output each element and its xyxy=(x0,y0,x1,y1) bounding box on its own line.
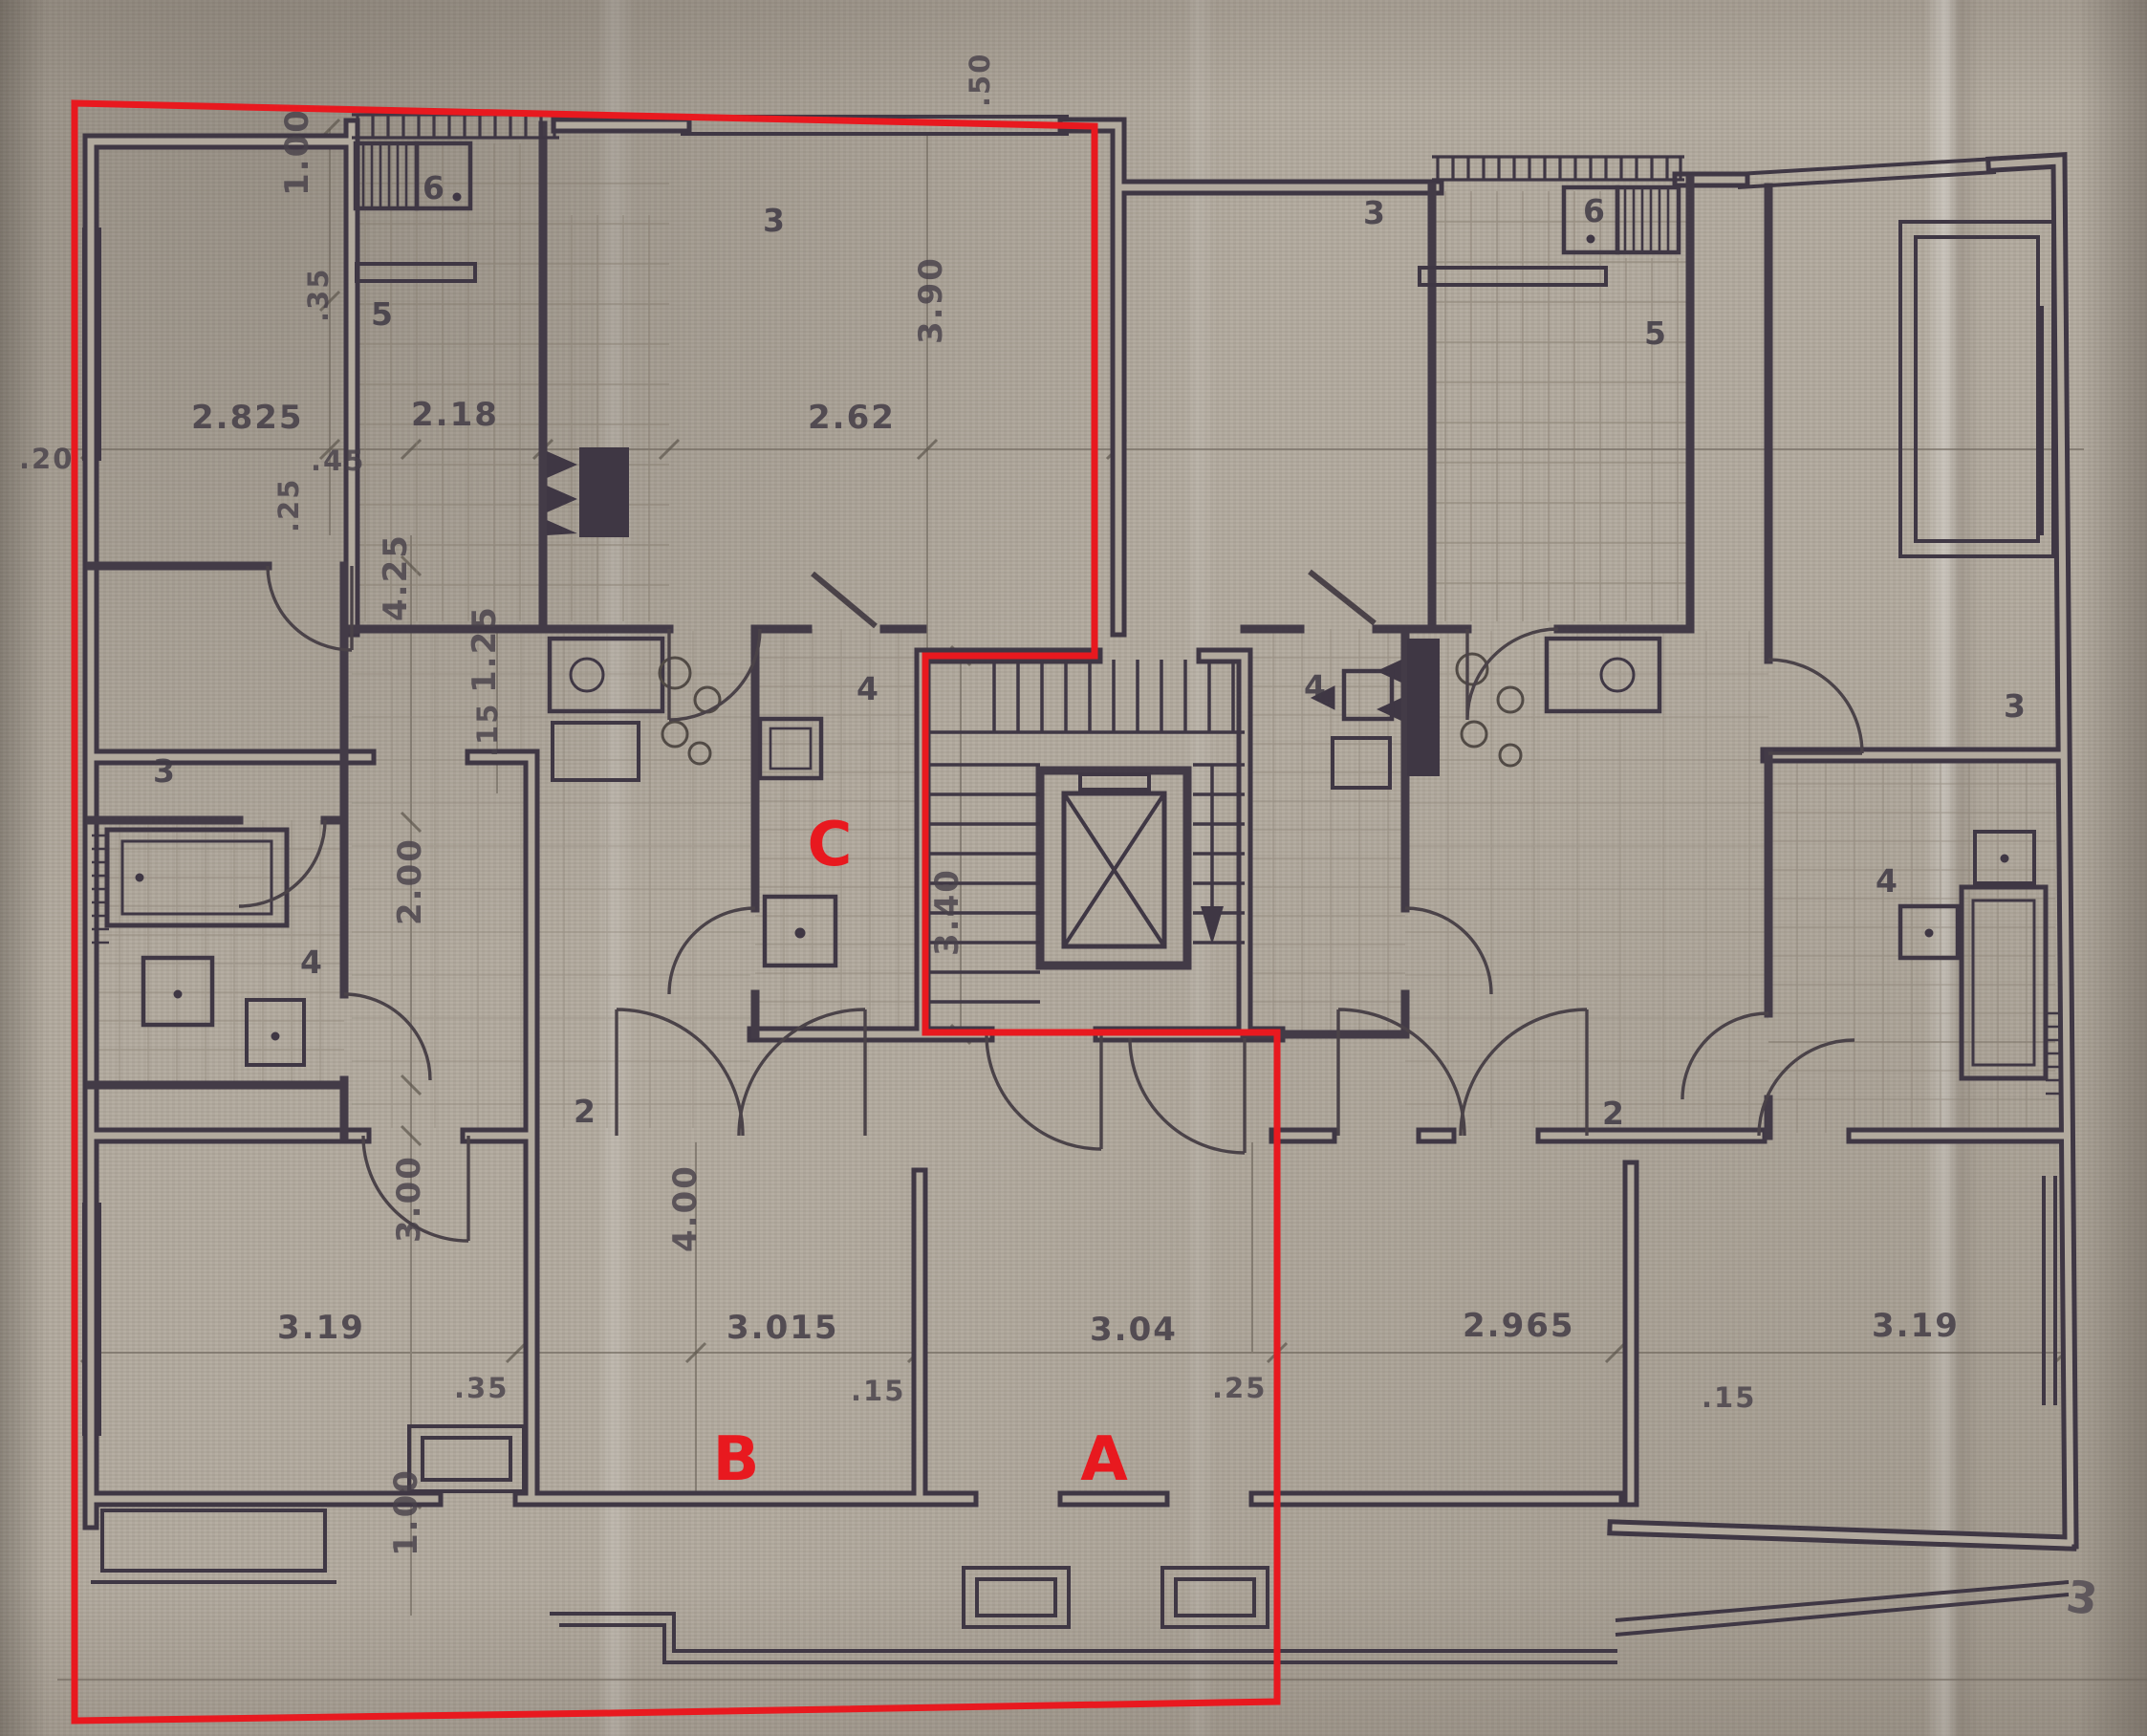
dimension-text: .25 xyxy=(272,478,305,532)
stair-direction-arrow xyxy=(1201,906,1224,944)
dimension-text: .15 xyxy=(471,703,504,757)
dimension-text: .15 xyxy=(1702,1381,1756,1414)
toilet-wc-left-icon xyxy=(765,897,835,966)
room-number: 4 xyxy=(1304,668,1326,705)
chimney-right xyxy=(1377,639,1440,776)
dimension-text: .45 xyxy=(311,445,365,477)
stove-right-icon xyxy=(1564,187,1679,252)
dimension-text: 2.825 xyxy=(191,399,304,437)
dimension-text: .15 xyxy=(851,1375,905,1407)
counter-sink-left xyxy=(550,639,662,780)
dimension-text: .20 xyxy=(19,443,74,475)
dimensions-layer: 2.825 2.18 2.62 .20 .45 .35 1.00 .25 4.2… xyxy=(19,53,1960,1556)
room-number: 5 xyxy=(1644,315,1666,352)
bathtub-right-icon xyxy=(1962,887,2046,1078)
dimension-text: 3.90 xyxy=(912,256,950,344)
toilet-right-icon xyxy=(1975,832,2034,883)
dimension-text: 2.62 xyxy=(808,399,896,437)
stairs xyxy=(925,660,1245,1002)
dimension-text: 1.00 xyxy=(278,108,316,196)
kitchen-tile-grid-right xyxy=(1434,191,1690,621)
room-number: 3 xyxy=(2004,687,2026,725)
washbasin-right-icon xyxy=(1900,906,1958,958)
dimension-text: 3.40 xyxy=(928,868,966,956)
elevator-icon xyxy=(1064,774,1164,946)
scanned-floorplan-photo: 2.825 2.18 2.62 .20 .45 .35 1.00 .25 4.2… xyxy=(0,0,2147,1736)
dimension-text: 4.25 xyxy=(377,533,415,621)
dimension-text: 4.00 xyxy=(666,1164,705,1252)
region-label-c: C xyxy=(808,810,853,880)
dimension-text: 3.00 xyxy=(390,1155,428,1243)
room-number: 2 xyxy=(574,1093,596,1130)
dimension-text: .25 xyxy=(1212,1372,1267,1404)
room-number: 3 xyxy=(1363,194,1385,231)
dimension-text: 3.19 xyxy=(1872,1307,1960,1345)
region-label-b: B xyxy=(713,1424,760,1495)
dimension-text: 2.00 xyxy=(391,837,429,925)
dimension-text: .50 xyxy=(964,53,996,107)
room-number: 4 xyxy=(300,944,322,981)
dimension-text: 1.00 xyxy=(387,1468,425,1556)
room-number: 6 xyxy=(1583,192,1605,229)
dimension-text: 2.965 xyxy=(1463,1307,1575,1345)
stove-left-icon xyxy=(356,143,470,208)
railing-hatch-right xyxy=(1432,157,1684,180)
dimension-text: 1.25 xyxy=(466,605,504,693)
dimension-text: 2.18 xyxy=(411,396,499,434)
toilet-wc-right-icon xyxy=(1333,738,1390,788)
walls-outer-core xyxy=(91,125,2071,1543)
floor-plan-svg: 2.825 2.18 2.62 .20 .45 .35 1.00 .25 4.2… xyxy=(0,0,2147,1736)
room-number: 3 xyxy=(153,752,175,790)
room-number: 5 xyxy=(371,295,393,333)
room-number: 3 xyxy=(763,202,785,239)
hall-floor-grid xyxy=(352,631,1768,1128)
dimension-text: .35 xyxy=(454,1372,509,1404)
railing-hatch-left xyxy=(352,115,559,138)
counter-sink-right xyxy=(1547,639,1659,711)
dimension-text: 3.19 xyxy=(277,1309,365,1347)
room-number: 4 xyxy=(1876,862,1898,900)
region-label-a: A xyxy=(1080,1424,1128,1495)
toilet-left-icon xyxy=(247,1000,304,1065)
bathroom-tile-grids xyxy=(91,629,2055,1133)
room-number: 6 xyxy=(423,169,445,206)
dimension-text: .35 xyxy=(302,268,335,322)
room-number: 4 xyxy=(857,670,878,707)
red-annotation-overlay: A B C xyxy=(75,103,1277,1721)
dimension-text: 3.04 xyxy=(1090,1311,1178,1349)
walls-outer xyxy=(91,125,2071,1543)
chimney-left xyxy=(547,447,629,537)
room-numbers-layer: 6 5 3 4 4 3 2 3 6 5 4 2 3 4 3 xyxy=(153,169,2101,1625)
dimension-text: 3.015 xyxy=(727,1309,839,1347)
room-number: 2 xyxy=(1602,1095,1624,1132)
washbasin-left-icon xyxy=(143,958,212,1025)
room-number: 3 xyxy=(2063,1570,2100,1625)
